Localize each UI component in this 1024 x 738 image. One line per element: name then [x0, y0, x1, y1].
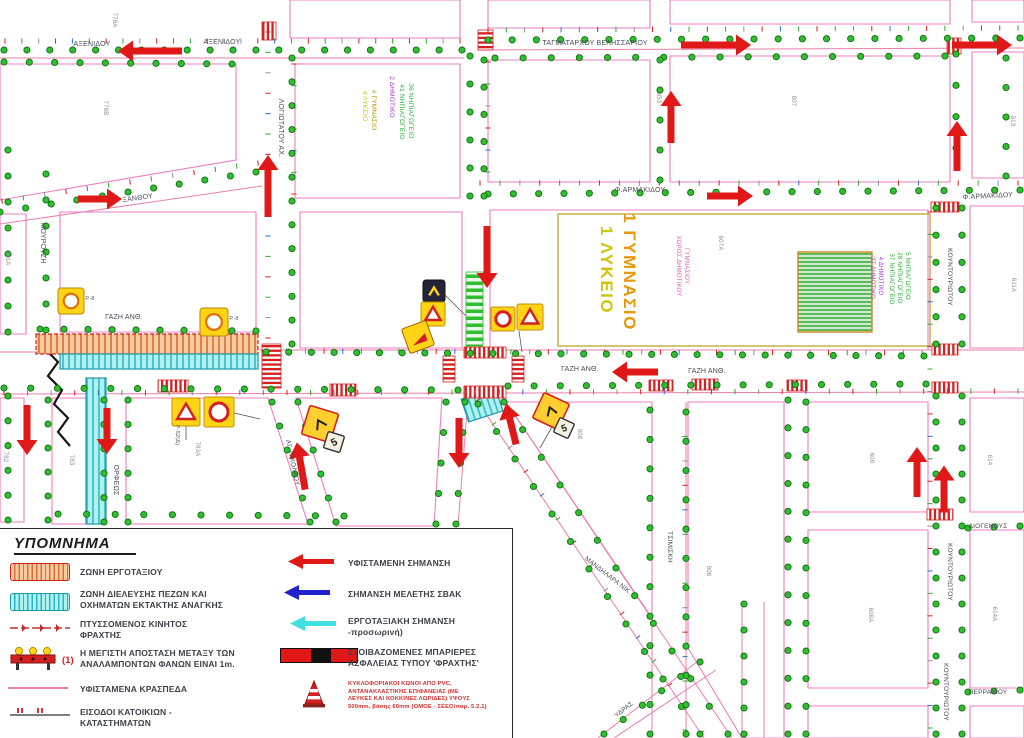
tree-dot	[428, 387, 434, 393]
legend-panel: ΥΠΟΜΝΗΜΑ ΖΩΝΗ ΕΡΓΟΤΑΞΙΟΥ ΖΩΝΗ ΔΙΕΛΕΥΣΗΣ …	[0, 528, 513, 738]
legend-label-fence: ΠΤΥΣΣΟΜΕΝΟΣ ΚΙΝΗΤΟΣ ΦΡΑΧΤΗΣ	[80, 619, 187, 641]
tree-dot	[286, 349, 292, 355]
tree-dot	[284, 513, 290, 519]
traffic-signage-plan-screenshot: 55 ΑΞΕΝΙΔΟΥΑΞΕΝΙΔΟΥΤΑΓΜΑΤΑΡΧΟΥ ΒΕΛΗΣΣΑΡΙ…	[0, 0, 1024, 738]
tree-dot	[933, 259, 939, 265]
tree-dot	[1003, 143, 1009, 149]
map-label: 614	[986, 455, 992, 466]
tree-dot	[43, 275, 49, 281]
map-label: 778Β	[102, 101, 108, 116]
tree-dot	[54, 385, 60, 391]
tree-dot	[785, 536, 791, 542]
tree-dot	[512, 350, 518, 356]
tree-dot	[108, 385, 114, 391]
tree-dot	[933, 705, 939, 711]
tree-dot	[1017, 687, 1023, 693]
tree-dot	[45, 493, 51, 499]
ban-sign-icon	[204, 397, 234, 427]
tree-dot	[697, 659, 703, 665]
sign-plate	[423, 280, 445, 302]
tree-dot	[310, 447, 316, 453]
tree-dot	[436, 47, 442, 53]
tree-dot	[689, 54, 695, 60]
tree-dot	[604, 593, 610, 599]
tree-dot	[533, 37, 539, 43]
tree-dot	[654, 36, 660, 42]
tree-dot	[803, 676, 809, 682]
tree-dot	[647, 613, 653, 619]
tree-dot	[198, 512, 204, 518]
tree-dot	[134, 385, 140, 391]
legend-label-stacked-barriers: ΣΤΟΙΒΑΖΟΜΕΝΕΣ ΜΠΑΡΙΕΡΕΣ ΑΣΦΑΛΕΙΑΣ ΤΥΠΟΥ …	[348, 647, 479, 669]
tree-dot	[576, 55, 582, 61]
tree-dot	[953, 114, 959, 120]
tree-dot	[467, 193, 473, 199]
tree-dot	[45, 469, 51, 475]
tree-dot	[741, 731, 747, 737]
tree-dot	[933, 393, 939, 399]
tree-dot	[773, 54, 779, 60]
map-label: 807	[790, 96, 796, 107]
tree-dot	[785, 647, 791, 653]
tree-dot	[953, 51, 959, 57]
tree-dot	[683, 409, 689, 415]
tree-dot	[576, 510, 582, 516]
map-label: ΓΑΖΗ ΑΝΘ.	[688, 368, 726, 375]
tree-dot	[401, 387, 407, 393]
tree-dot	[125, 470, 131, 476]
tree-dot	[375, 387, 381, 393]
tree-dot	[657, 117, 663, 123]
legend-item-entrances	[8, 705, 72, 724]
tree-dot	[942, 53, 948, 59]
tree-dot	[5, 277, 11, 283]
tree-dot	[829, 53, 835, 59]
map-label: ΠΕΡΡΑΙΒΟΥ	[969, 689, 1008, 696]
tree-dot	[785, 352, 791, 358]
tree-dot	[959, 205, 965, 211]
tree-dot	[872, 35, 878, 41]
tree-dot	[604, 54, 610, 60]
tree-dot	[623, 621, 629, 627]
tree-dot	[647, 525, 653, 531]
ban-sign-icon	[491, 307, 515, 331]
tree-dot	[959, 523, 965, 529]
tree-dot	[959, 393, 965, 399]
tree-dot	[647, 584, 653, 590]
tree-dot	[785, 508, 791, 514]
map-label: ΚΟΥΝΤΟΥΡΙΩΤΟΥ	[946, 248, 953, 306]
tree-dot	[933, 653, 939, 659]
map-label: 41 ΝΗΠΙΑΓΩΓΕΙΟ	[398, 84, 405, 139]
legend-label-worksite-signage: ΕΡΓΟΤΑΞΙΑΚΗ ΣΗΜΑΝΣΗ -προσωρινή)	[348, 616, 455, 638]
tree-dot	[312, 513, 318, 519]
tree-dot	[509, 37, 515, 43]
map-label: ΤΣΙΜΙΣΚΗ	[666, 531, 673, 563]
flashing-barrier-icon	[8, 645, 62, 672]
map-label: 1 ΛΥΚΕΙΟ	[597, 226, 616, 314]
tree-dot	[255, 512, 261, 518]
tree-dot	[959, 341, 965, 347]
tree-dot	[269, 399, 275, 405]
tree-dot	[289, 341, 295, 347]
map-label: ΚΟΥΝΤΟΥΡΙΩΤΟΥ	[946, 543, 953, 601]
tree-dot	[933, 205, 939, 211]
map-label: ΜΟΥΡΟΥΖΗ	[39, 222, 46, 263]
sports-court	[798, 252, 872, 332]
legend-label-curb: ΥΦΙΣΤΑΜΕΝΑ ΚΡΑΣΠΕΔΑ	[80, 684, 187, 695]
city-block	[670, 0, 950, 24]
tree-dot	[376, 350, 382, 356]
tree-dot	[683, 438, 689, 444]
city-block	[808, 706, 928, 738]
tree-dot	[0, 209, 3, 215]
tree-dot	[467, 109, 473, 115]
tree-dot	[157, 327, 163, 333]
city-block	[970, 398, 1024, 512]
tree-dot	[45, 445, 51, 451]
tree-dot	[55, 511, 61, 517]
tree-dot	[1003, 114, 1009, 120]
tree-dot	[669, 648, 675, 654]
warn-sign-icon	[517, 304, 543, 330]
red-hatched-strip	[927, 509, 953, 520]
tree-dot	[37, 326, 43, 332]
tree-dot	[959, 471, 965, 477]
tree-dot	[959, 259, 965, 265]
tree-dot	[125, 446, 131, 452]
tree-dot	[28, 385, 34, 391]
tree-dot	[632, 593, 638, 599]
tree-dot	[289, 222, 295, 228]
tree-dot	[61, 326, 67, 332]
tree-dot	[263, 349, 269, 355]
pedestrian-zone-swatch-icon	[10, 593, 70, 611]
tree-dot	[289, 126, 295, 132]
existing-curb-line-icon	[8, 687, 68, 689]
map-label: 608Α	[867, 608, 873, 623]
tree-dot	[803, 731, 809, 737]
tree-dot	[959, 653, 965, 659]
city-block	[972, 0, 1024, 22]
map-label: 5 ΝΗΠΙΑΓΩΓΕΙΟ	[904, 252, 910, 300]
traffic-cone-icon	[302, 679, 326, 709]
tree-dot	[289, 269, 295, 275]
map-label: ΓΥΜΝΑΣΙΟΥ	[683, 248, 689, 284]
map-label: 808	[576, 429, 582, 440]
tree-dot	[289, 55, 295, 61]
tree-dot	[5, 418, 11, 424]
tree-dot	[581, 351, 587, 357]
tree-dot	[609, 382, 615, 388]
tree-dot	[289, 103, 295, 109]
tree-dot	[341, 513, 347, 519]
tree-dot	[5, 199, 11, 205]
map-label: ΛΟΓΙΩΤΑΤΟΥ ΑΧ.	[277, 99, 284, 157]
tree-dot	[959, 287, 965, 293]
tree-dot	[633, 54, 639, 60]
tree-dot	[133, 327, 139, 333]
tree-dot	[789, 189, 795, 195]
tree-dot	[785, 480, 791, 486]
tree-dot	[714, 382, 720, 388]
tree-dot	[694, 352, 700, 358]
tree-dot	[102, 60, 108, 66]
tree-dot	[678, 36, 684, 42]
tree-dot	[766, 382, 772, 388]
tree-dot	[803, 454, 809, 460]
tree-dot	[1003, 84, 1009, 90]
city-block	[0, 214, 26, 334]
warn-sign-icon	[172, 398, 200, 426]
tree-dot	[641, 648, 647, 654]
barrier-note: (1)	[62, 655, 74, 666]
tree-dot	[331, 349, 337, 355]
city-block	[290, 0, 460, 38]
tree-dot	[178, 60, 184, 66]
tree-dot	[101, 470, 107, 476]
map-label: ΓΑΖΗ ΑΝΘ.	[105, 314, 143, 321]
tree-dot	[636, 382, 642, 388]
tree-dot	[603, 351, 609, 357]
tree-dot	[683, 497, 689, 503]
city-block	[972, 52, 1024, 178]
map-label: 4 ΓΥΜΝΑΣΙΟ	[370, 90, 377, 131]
tree-dot	[933, 549, 939, 555]
tree-dot	[289, 317, 295, 323]
tree-dot	[512, 456, 518, 462]
work-zone-swatch-icon	[10, 563, 70, 581]
tree-dot	[125, 397, 131, 403]
city-block	[488, 0, 650, 28]
tree-dot	[125, 495, 131, 501]
tree-dot	[764, 189, 770, 195]
map-label: Φ.ΑΡΜΑΚΙΔΟΥ	[615, 187, 666, 194]
tree-dot	[241, 386, 247, 392]
tree-dot	[785, 620, 791, 626]
sign-symbol	[64, 294, 79, 309]
tree-dot	[557, 482, 563, 488]
tree-dot	[151, 185, 157, 191]
tree-dot	[307, 519, 313, 525]
tree-dot	[717, 352, 723, 358]
tree-dot	[775, 36, 781, 42]
red-hatched-strip	[512, 356, 524, 382]
tree-dot	[1003, 173, 1009, 179]
legend-item-existing-signage	[286, 553, 336, 575]
map-label: Ρ-8	[85, 296, 94, 302]
tree-dot	[109, 327, 115, 333]
tree-dot	[23, 205, 29, 211]
legend-item-work-zone	[10, 563, 70, 581]
tree-dot	[399, 350, 405, 356]
tree-dot	[683, 467, 689, 473]
map-label: 37 ΔΗΜΟΤΙΚΟ	[869, 257, 875, 299]
tree-dot	[101, 495, 107, 501]
map-label: 783Α	[194, 442, 200, 457]
tree-dot	[276, 47, 282, 53]
tree-dot	[660, 676, 666, 682]
tree-dot	[740, 382, 746, 388]
tree-dot	[969, 35, 975, 41]
tree-dot	[959, 419, 965, 425]
legend-label-cones: ΚΥΚΛΟΦΟΡΙΑΚΟΙ ΚΩΝΟΙ ΑΠΟ PVC, ΑΝΤΑΝΑΚΛΑΣΤ…	[348, 681, 487, 711]
tree-dot	[959, 575, 965, 581]
tree-dot	[657, 177, 663, 183]
tree-dot	[848, 36, 854, 42]
tree-dot	[289, 293, 295, 299]
sign-symbol	[496, 312, 510, 326]
tree-dot	[959, 601, 965, 607]
map-label: ΔΙΟΓΕΝΟΥΣ	[969, 523, 1008, 530]
tree-dot	[739, 352, 745, 358]
tree-dot	[688, 382, 694, 388]
tree-dot	[45, 421, 51, 427]
city-block	[295, 64, 460, 198]
tree-dot	[5, 147, 11, 153]
tree-dot	[896, 35, 902, 41]
tree-dot	[785, 731, 791, 737]
tree-dot	[549, 511, 555, 517]
tree-dot	[535, 351, 541, 357]
tree-dot	[751, 36, 757, 42]
tree-dot	[647, 554, 653, 560]
tree-dot	[5, 517, 11, 523]
tree-dot	[659, 688, 665, 694]
tree-dot	[45, 397, 51, 403]
tree-dot	[390, 47, 396, 53]
blue-arrow-icon	[282, 584, 332, 601]
tree-dot	[785, 703, 791, 709]
tree-dot	[897, 381, 903, 387]
tree-dot	[830, 352, 836, 358]
tree-dot	[959, 705, 965, 711]
tree-dot	[1017, 187, 1023, 193]
legend-item-ped-zone	[10, 593, 70, 611]
tree-dot	[153, 60, 159, 66]
tree-dot	[683, 526, 689, 532]
tree-dot	[803, 537, 809, 543]
tree-dot	[683, 585, 689, 591]
city-block	[670, 56, 950, 182]
tree-dot	[141, 511, 147, 517]
map-label: ΓΑΖΗ ΑΝΘ.	[561, 366, 599, 373]
tree-dot	[933, 731, 939, 737]
tree-dot	[657, 57, 663, 63]
tree-dot	[966, 187, 972, 193]
tree-dot	[803, 620, 809, 626]
tree-dot	[47, 47, 53, 53]
legend-label-existing-signage: ΥΦΙΣΤΑΜΕΝΗ ΣΗΜΑΝΣΗ	[348, 558, 450, 569]
tree-dot	[207, 47, 213, 53]
map-label: 2 ΔΗΜΟΤΙΚΟ	[388, 76, 395, 118]
map-label: Ρ-52(Δ)	[174, 425, 180, 445]
tree-dot	[933, 419, 939, 425]
tree-dot	[443, 399, 449, 405]
tree-dot	[601, 731, 607, 737]
tree-dot	[959, 627, 965, 633]
map-label: 781Α	[4, 251, 10, 266]
tree-dot	[444, 350, 450, 356]
tree-dot	[289, 174, 295, 180]
tree-dot	[803, 399, 809, 405]
tree-dot	[683, 643, 689, 649]
map-label: 813	[1009, 116, 1015, 127]
tree-dot	[325, 495, 331, 501]
tree-dot	[45, 517, 51, 523]
tree-dot	[227, 512, 233, 518]
tree-dot	[647, 407, 653, 413]
tree-dot	[785, 592, 791, 598]
map-label: 614Α	[991, 607, 997, 622]
map-label: ΧΩΡΟΣ ΔΗΜΟΤΙΚΟΥ	[675, 236, 681, 297]
tree-dot	[299, 495, 305, 501]
tree-dot	[890, 188, 896, 194]
tree-dot	[703, 36, 709, 42]
tree-dot	[1, 59, 7, 65]
map-label: 4 ΔΗΜΟΤΙΚΟ	[877, 257, 883, 296]
tree-dot	[792, 382, 798, 388]
tree-dot	[455, 490, 461, 496]
map-label: 28 ΝΗΠΙΑΓΩΓΕΙΟ	[896, 252, 902, 303]
tree-dot	[706, 703, 712, 709]
sign-symbol	[206, 314, 222, 330]
tree-dot	[422, 350, 428, 356]
tree-dot	[181, 327, 187, 333]
tree-dot	[289, 150, 295, 156]
tree-dot	[229, 328, 235, 334]
tree-dot	[354, 349, 360, 355]
tree-dot	[295, 399, 301, 405]
tree-dot	[876, 353, 882, 359]
tree-dot	[467, 165, 473, 171]
tree-dot	[814, 188, 820, 194]
tree-dot	[322, 47, 328, 53]
p8-sign-icon	[58, 288, 84, 314]
tree-dot	[475, 401, 481, 407]
tree-dot	[647, 731, 653, 737]
tree-dot	[662, 382, 668, 388]
tree-dot	[933, 523, 939, 529]
tree-dot	[959, 232, 965, 238]
tree-dot	[43, 327, 49, 333]
tree-dot	[799, 36, 805, 42]
tree-dot	[321, 386, 327, 392]
tree-dot	[818, 381, 824, 387]
tree-dot	[785, 453, 791, 459]
map-label: 4 ΛΥΚΕΙΟ	[361, 91, 368, 121]
p8-sign-icon	[200, 308, 228, 336]
tree-dot	[413, 47, 419, 53]
tree-dot	[289, 246, 295, 252]
tree-dot	[583, 383, 589, 389]
tree-dot	[920, 35, 926, 41]
red-hatched-strip	[262, 22, 276, 40]
tree-dot	[77, 60, 83, 66]
tree-dot	[492, 55, 498, 61]
tree-dot	[959, 497, 965, 503]
tree-dot	[697, 731, 703, 737]
tree-dot	[5, 303, 11, 309]
tree-dot	[333, 519, 339, 525]
tree-dot	[215, 386, 221, 392]
tree-dot	[557, 383, 563, 389]
tree-dot	[649, 351, 655, 357]
tree-dot	[538, 454, 544, 460]
sign-symbol	[210, 403, 228, 421]
tree-dot	[481, 111, 487, 117]
tree-dot	[567, 538, 573, 544]
